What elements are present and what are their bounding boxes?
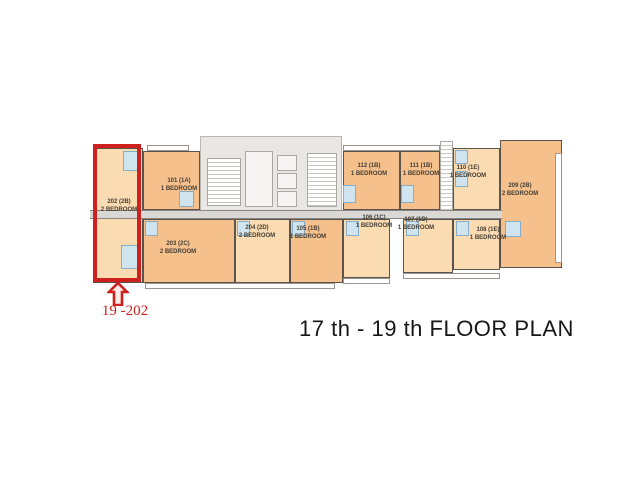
- floor-plan-page: { "title": "17 th - 19 th FLOOR PLAN", "…: [0, 0, 640, 480]
- unit-number: 106 (1C): [350, 214, 398, 222]
- unit-209: [500, 140, 562, 268]
- unit-type: 2 BEDROOM: [233, 232, 281, 240]
- elevator-cab: [277, 191, 297, 207]
- balcony: [343, 145, 440, 151]
- elevator-cab: [277, 173, 297, 189]
- unit-label-110: 110 (1E) 1 BEDROOM: [444, 164, 492, 180]
- balcony: [147, 145, 189, 151]
- highlight-callout: 19 -202: [94, 303, 156, 320]
- stairs-mid: [307, 153, 337, 207]
- unit-number: 107 (1D): [392, 216, 440, 224]
- unit-label-203: 203 (2C) 2 BEDROOM: [154, 240, 202, 256]
- unit-label-204: 204 (2D) 2 BEDROOM: [233, 224, 281, 240]
- bathroom-area: [179, 191, 194, 207]
- floor-plan: 202 (2B) 2 BEDROOM 101 (1A) 1 BEDROOM 11…: [85, 133, 563, 291]
- unit-label-209: 209 (2B) 2 BEDROOM: [496, 182, 544, 198]
- balcony: [145, 283, 335, 289]
- unit-label-105: 105 (1B) 1 BEDROOM: [284, 225, 332, 241]
- unit-type: 1 BEDROOM: [464, 234, 512, 242]
- unit-label-112: 112 (1B) 1 BEDROOM: [345, 162, 393, 178]
- unit-number: 108 (1E): [464, 226, 512, 234]
- unit-number: 112 (1B): [345, 162, 393, 170]
- bathroom-area: [455, 150, 468, 164]
- highlight-box-unit-202: [93, 144, 141, 282]
- bathroom-area: [145, 221, 158, 236]
- unit-type: 2 BEDROOM: [154, 248, 202, 256]
- unit-type: 2 BEDROOM: [496, 190, 544, 198]
- unit-number: 209 (2B): [496, 182, 544, 190]
- unit-type: 1 BEDROOM: [345, 170, 393, 178]
- unit-type: 1 BEDROOM: [397, 170, 445, 178]
- unit-number: 204 (2D): [233, 224, 281, 232]
- unit-label-101: 101 (1A) 1 BEDROOM: [155, 177, 203, 193]
- unit-number: 203 (2C): [154, 240, 202, 248]
- unit-label-111: 111 (1B) 1 BEDROOM: [397, 162, 445, 178]
- elevator-shaft: [245, 151, 273, 207]
- elevator-cab: [277, 155, 297, 171]
- stairs-left: [207, 158, 241, 206]
- unit-type: 1 BEDROOM: [284, 233, 332, 241]
- unit-label-107: 107 (1D) 1 BEDROOM: [392, 216, 440, 232]
- balcony: [555, 153, 562, 263]
- unit-type: 1 BEDROOM: [350, 222, 398, 230]
- bathroom-area: [343, 185, 356, 203]
- unit-number: 110 (1E): [444, 164, 492, 172]
- unit-type: 1 BEDROOM: [444, 172, 492, 180]
- unit-label-106: 106 (1C) 1 BEDROOM: [350, 214, 398, 230]
- corridor: [90, 210, 502, 219]
- unit-number: 101 (1A): [155, 177, 203, 185]
- unit-type: 1 BEDROOM: [155, 185, 203, 193]
- balcony: [343, 278, 390, 284]
- bathroom-area: [401, 185, 414, 203]
- balcony: [403, 273, 500, 279]
- page-title: 17 th - 19 th FLOOR PLAN: [299, 316, 559, 342]
- unit-type: 1 BEDROOM: [392, 224, 440, 232]
- unit-label-108: 108 (1E) 1 BEDROOM: [464, 226, 512, 242]
- unit-number: 105 (1B): [284, 225, 332, 233]
- unit-number: 111 (1B): [397, 162, 445, 170]
